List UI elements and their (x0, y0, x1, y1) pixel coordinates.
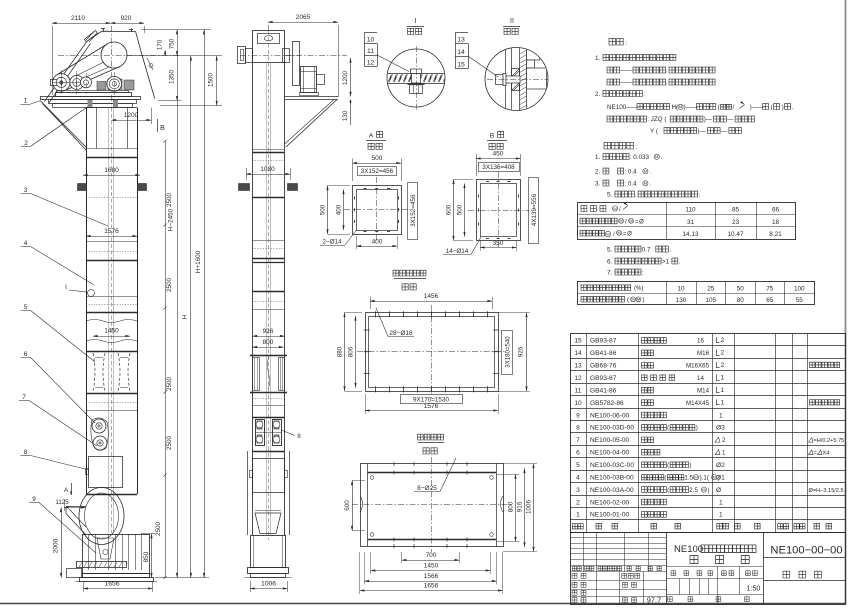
svg-text:800: 800 (508, 501, 515, 512)
svg-text:110: 110 (685, 207, 696, 214)
svg-text:5: 5 (576, 462, 580, 469)
svg-text:5.: 5. (607, 247, 613, 254)
svg-text::: : (643, 91, 645, 98)
svg-text:916: 916 (517, 501, 524, 512)
svg-text:NE100-01-00: NE100-01-00 (590, 512, 630, 519)
svg-text:2500: 2500 (166, 278, 173, 293)
svg-text:GB5782-86: GB5782-86 (590, 400, 624, 407)
svg-text:)—: )— (704, 116, 713, 123)
svg-text:1500: 1500 (208, 73, 215, 88)
svg-text:15: 15 (457, 62, 465, 69)
svg-text:>1: >1 (662, 259, 670, 266)
svg-text:31: 31 (687, 219, 695, 226)
svg-text:2065: 2065 (296, 14, 311, 21)
svg-text:2.: 2. (595, 169, 601, 176)
svg-text:7.: 7. (607, 270, 613, 277)
svg-text:): ) (696, 425, 698, 432)
svg-text:.: . (670, 247, 672, 254)
svg-text:2: 2 (24, 140, 28, 147)
svg-text:806: 806 (348, 346, 355, 357)
svg-text:M: M (637, 297, 640, 302)
svg-text::: : (698, 192, 700, 199)
svg-text:: 0.4: : 0.4 (624, 169, 637, 176)
svg-text:M: M (619, 218, 622, 223)
svg-text:1: 1 (721, 375, 725, 382)
svg-text:100: 100 (794, 286, 805, 293)
svg-text:1456: 1456 (424, 293, 439, 300)
svg-text:1680: 1680 (104, 167, 119, 174)
svg-text:66: 66 (772, 207, 780, 214)
svg-text:9: 9 (32, 496, 36, 503)
svg-text:80: 80 (737, 297, 745, 304)
svg-text:3.: 3. (595, 181, 601, 188)
svg-text:1656: 1656 (424, 583, 439, 590)
svg-text:450: 450 (493, 151, 504, 158)
svg-text:750: 750 (168, 38, 175, 49)
svg-text:15: 15 (574, 338, 582, 345)
svg-text:NE100-04-00: NE100-04-00 (590, 450, 630, 457)
svg-text:13: 13 (457, 37, 465, 44)
svg-text:85: 85 (732, 207, 740, 214)
svg-text:II: II (510, 18, 514, 25)
svg-text:1566: 1566 (424, 573, 439, 580)
svg-text::: : (635, 144, 637, 151)
svg-text:Ø2: Ø2 (716, 462, 725, 469)
svg-text:8.21: 8.21 (769, 231, 782, 238)
svg-text:2.: 2. (595, 91, 601, 98)
svg-text:8: 8 (576, 425, 580, 432)
svg-text:8: 8 (24, 449, 28, 456)
svg-text:1: 1 (719, 412, 723, 419)
svg-text:M: M (606, 231, 609, 236)
svg-text:14.13: 14.13 (683, 231, 699, 238)
svg-text:,: , (635, 193, 636, 199)
svg-text:23: 23 (732, 219, 740, 226)
svg-text:.: . (649, 181, 651, 188)
svg-text:130: 130 (342, 110, 349, 121)
svg-text:13: 13 (574, 363, 582, 370)
svg-text:1: 1 (721, 399, 725, 406)
svg-text:: 0.4: : 0.4 (624, 181, 637, 188)
svg-text:M: M (631, 297, 634, 302)
svg-text:A: A (64, 487, 69, 494)
svg-text:—: — (721, 128, 728, 135)
svg-text:: 0.033: : 0.033 (630, 154, 650, 161)
svg-text:3X152=456: 3X152=456 (361, 168, 394, 175)
svg-text:Y (: Y ( (650, 128, 659, 135)
svg-text:28−Ø16: 28−Ø16 (389, 330, 413, 337)
svg-text:M14: M14 (697, 387, 710, 394)
svg-text:850: 850 (143, 551, 150, 562)
svg-text:): ) (708, 487, 710, 494)
svg-text:M16X65: M16X65 (686, 363, 710, 370)
svg-text:130: 130 (676, 297, 687, 304)
svg-text:,: , (666, 68, 667, 74)
svg-text:)—: )— (698, 128, 707, 135)
svg-text:65: 65 (766, 297, 774, 304)
svg-text:16: 16 (697, 338, 704, 345)
svg-text:,: , (666, 80, 667, 86)
svg-text::: : (642, 270, 644, 277)
svg-text:0.7: 0.7 (642, 247, 651, 254)
svg-text:M: M (617, 230, 620, 235)
svg-text:NE100−00−00: NE100−00−00 (770, 545, 842, 557)
svg-text:2500: 2500 (155, 522, 162, 537)
svg-text:14: 14 (457, 49, 465, 56)
svg-text:1: 1 (721, 387, 725, 394)
svg-text:Ø3: Ø3 (716, 425, 725, 432)
svg-text:GB41-86: GB41-86 (590, 350, 617, 357)
svg-text:4X139=556: 4X139=556 (531, 193, 538, 226)
svg-text:926: 926 (263, 328, 274, 335)
svg-text:8−Ø25: 8−Ø25 (417, 485, 437, 492)
svg-text:): ) (782, 104, 784, 111)
svg-text:H: H (182, 314, 189, 319)
svg-text:M: M (613, 206, 616, 211)
svg-text:3: 3 (576, 487, 580, 494)
svg-text:——: —— (620, 79, 633, 86)
svg-text:10: 10 (367, 37, 375, 44)
svg-text:M: M (644, 181, 647, 186)
svg-text:1.5: 1.5 (684, 474, 693, 481)
svg-text:/: / (733, 104, 735, 111)
svg-text:Ø1: Ø1 (716, 474, 725, 481)
svg-text:NE100-03D-00: NE100-03D-00 (590, 425, 634, 432)
svg-text:97.7: 97.7 (647, 595, 661, 604)
svg-text:2: 2 (721, 350, 725, 357)
svg-text:GB93-87: GB93-87 (590, 375, 617, 382)
svg-text:(%): (%) (634, 286, 643, 292)
svg-text:H−2450: H−2450 (168, 208, 175, 231)
svg-text:11: 11 (575, 387, 582, 394)
svg-text:M: M (702, 487, 705, 492)
svg-text:1350: 1350 (168, 70, 175, 85)
svg-text:NE100-02-00: NE100-02-00 (590, 499, 630, 506)
svg-text:M: M (679, 104, 682, 109)
svg-text:2−Ø14: 2−Ø14 (322, 239, 342, 246)
svg-text:170: 170 (157, 39, 164, 50)
svg-text:7: 7 (576, 437, 580, 444)
svg-text:1125: 1125 (55, 499, 69, 506)
svg-text:5: 5 (24, 304, 28, 311)
svg-text:NE100——: NE100—— (607, 104, 640, 111)
svg-text:2.5: 2.5 (689, 487, 698, 494)
svg-text:6: 6 (24, 351, 28, 358)
svg-text:500: 500 (372, 155, 383, 162)
svg-text:2500: 2500 (166, 377, 173, 392)
svg-text:1200: 1200 (342, 71, 349, 86)
svg-text:105: 105 (705, 297, 716, 304)
svg-text:1:50: 1:50 (746, 584, 760, 593)
svg-text:1450: 1450 (424, 563, 439, 570)
svg-text:400: 400 (372, 238, 383, 245)
svg-text:3: 3 (24, 187, 28, 194)
svg-text:10: 10 (574, 400, 582, 407)
svg-text:Ø=H−3.15/2.5: Ø=H−3.15/2.5 (809, 488, 844, 494)
svg-text:——: —— (620, 67, 633, 74)
svg-text:X4: X4 (823, 451, 831, 457)
svg-text:14: 14 (697, 375, 704, 382)
svg-text:1: 1 (719, 499, 723, 506)
svg-text:B: B (160, 125, 165, 132)
svg-text:3X152=456: 3X152=456 (410, 194, 417, 227)
svg-text:400: 400 (336, 204, 343, 215)
svg-text:11: 11 (367, 48, 374, 55)
svg-text:1.: 1. (595, 154, 601, 161)
svg-text:2: 2 (721, 337, 725, 344)
svg-text:B: B (490, 133, 495, 140)
svg-text:.: . (661, 154, 663, 161)
svg-text:.: . (792, 104, 794, 111)
svg-text:Ø: Ø (639, 220, 644, 226)
svg-text:2500: 2500 (166, 436, 173, 451)
svg-text:Ø: Ø (627, 232, 632, 238)
svg-text:3X180=540: 3X180=540 (504, 336, 511, 368)
svg-text:M: M (655, 154, 658, 159)
svg-text:.: . (679, 259, 681, 266)
svg-text:GB68-76: GB68-76 (590, 363, 617, 370)
svg-text:1006: 1006 (526, 500, 533, 515)
svg-text:H+1600: H+1600 (195, 250, 202, 273)
svg-text:NE100: NE100 (674, 544, 703, 555)
svg-text:12: 12 (574, 375, 582, 382)
svg-text:1.: 1. (595, 55, 601, 62)
svg-text:4: 4 (576, 474, 580, 481)
svg-text:1200: 1200 (124, 112, 139, 119)
svg-text:1656: 1656 (104, 581, 119, 588)
svg-text:800: 800 (263, 339, 274, 346)
svg-text:9: 9 (576, 412, 580, 419)
svg-text:1: 1 (719, 512, 723, 519)
svg-text:1: 1 (576, 512, 580, 519)
svg-text:3X136=408: 3X136=408 (482, 164, 515, 171)
svg-text:I: I (65, 284, 67, 291)
svg-text::: : (625, 40, 627, 47)
svg-text:14−Ø14: 14−Ø14 (446, 248, 469, 255)
svg-text:M: M (694, 475, 697, 480)
svg-text:2: 2 (721, 362, 725, 369)
svg-text:—: — (727, 116, 734, 123)
svg-text:NE100-06-00: NE100-06-00 (590, 412, 630, 419)
svg-text:600: 600 (344, 500, 351, 511)
svg-text:920: 920 (121, 15, 132, 22)
svg-text:).1(: ).1( (700, 474, 710, 481)
svg-text:50: 50 (737, 286, 745, 293)
svg-text:1576: 1576 (104, 228, 119, 235)
svg-text:14: 14 (574, 350, 582, 357)
svg-text:NE100-05-00: NE100-05-00 (590, 437, 630, 444)
svg-text:500: 500 (320, 204, 327, 215)
svg-text:M14X45: M14X45 (686, 400, 710, 407)
svg-text:500: 500 (457, 204, 464, 215)
svg-text:1030: 1030 (260, 166, 275, 173)
svg-text:GB41-86: GB41-86 (590, 387, 617, 394)
svg-text:GB93-87: GB93-87 (590, 338, 617, 345)
svg-text:: JZQ (: : JZQ ( (647, 116, 667, 123)
svg-text:5.: 5. (607, 192, 613, 199)
svg-text:1006: 1006 (261, 581, 276, 588)
svg-text:700: 700 (426, 552, 437, 559)
svg-text:4: 4 (24, 240, 28, 247)
svg-text:18: 18 (772, 219, 780, 226)
svg-text:): ) (643, 298, 645, 304)
svg-text:M: M (629, 218, 632, 223)
svg-text:2110: 2110 (71, 15, 85, 22)
svg-text:2000: 2000 (53, 538, 60, 553)
svg-text:2500: 2500 (166, 193, 173, 208)
svg-text:1576: 1576 (424, 403, 439, 410)
svg-text:7: 7 (22, 394, 26, 401)
svg-text:NE100-03C-00: NE100-03C-00 (590, 462, 634, 469)
svg-text:55: 55 (796, 297, 804, 304)
svg-text:75: 75 (766, 286, 774, 293)
svg-text:25: 25 (707, 286, 715, 293)
svg-text:.: . (649, 169, 651, 176)
svg-text:1450: 1450 (104, 328, 119, 335)
svg-text:2: 2 (576, 499, 580, 506)
svg-text:350: 350 (493, 240, 504, 247)
svg-text:II: II (297, 433, 301, 440)
svg-text:10: 10 (677, 286, 685, 293)
svg-text:926: 926 (518, 346, 525, 357)
svg-text:600: 600 (446, 204, 453, 215)
svg-text:1: 1 (722, 450, 726, 457)
svg-text:(: ( (627, 298, 629, 304)
svg-text:NE100-03A-00: NE100-03A-00 (590, 487, 634, 494)
svg-text:/: / (619, 206, 621, 213)
svg-text:NE100-03B-00: NE100-03B-00 (590, 474, 634, 481)
svg-text:): ) (689, 462, 691, 469)
svg-text:Ø: Ø (716, 487, 721, 494)
svg-text:6: 6 (576, 450, 580, 457)
svg-text:M16: M16 (697, 350, 710, 357)
svg-text:M: M (644, 169, 647, 174)
svg-text:1: 1 (24, 98, 28, 105)
svg-text:I: I (415, 18, 417, 25)
svg-text:880: 880 (337, 346, 344, 357)
svg-text:2: 2 (722, 437, 726, 444)
svg-text:6.: 6. (607, 259, 613, 266)
svg-text:=H/0.2+5.75: =H/0.2+5.75 (814, 438, 845, 444)
svg-text:12: 12 (367, 60, 375, 67)
svg-text:10.47: 10.47 (728, 231, 744, 238)
svg-text:A: A (369, 133, 374, 140)
